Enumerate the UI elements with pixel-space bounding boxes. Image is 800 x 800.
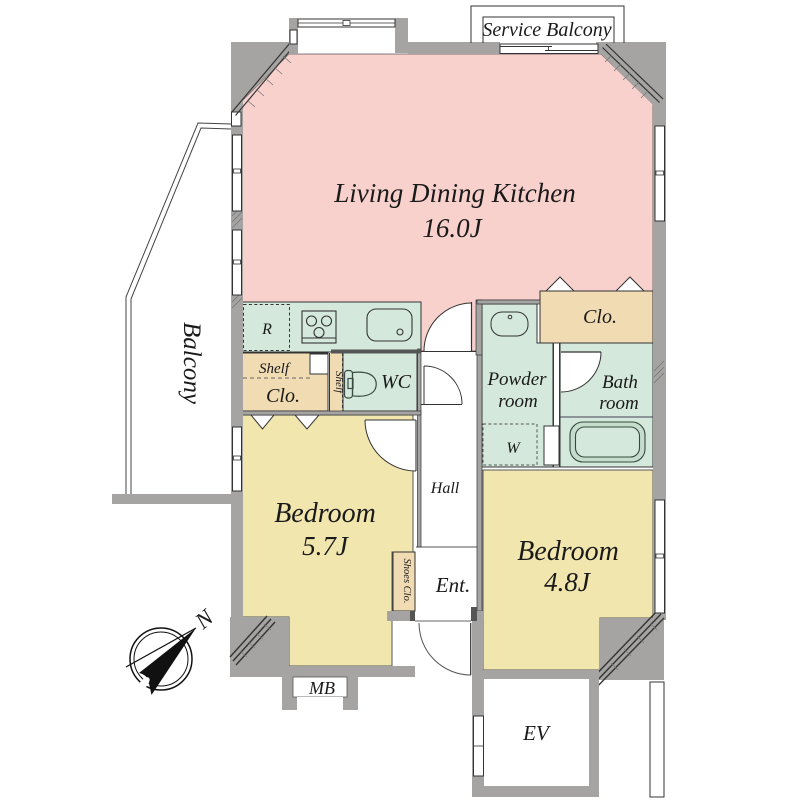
svg-text:Service Balcony: Service Balcony: [482, 19, 611, 41]
svg-text:W: W: [506, 440, 521, 457]
svg-text:Bedroom: Bedroom: [517, 536, 619, 567]
svg-text:WC: WC: [381, 371, 412, 393]
svg-text:5.7J: 5.7J: [302, 531, 350, 561]
svg-text:Hall: Hall: [430, 480, 460, 497]
svg-text:Clo.: Clo.: [266, 385, 300, 407]
svg-text:Shoes Clo.: Shoes Clo.: [401, 559, 412, 604]
svg-text:4.8J: 4.8J: [544, 567, 592, 597]
svg-text:Balcony: Balcony: [178, 322, 205, 405]
svg-text:room: room: [498, 391, 537, 412]
svg-text:R: R: [261, 321, 272, 338]
svg-text:MB: MB: [308, 678, 335, 698]
svg-text:Shelf: Shelf: [259, 361, 291, 377]
svg-text:Powder: Powder: [486, 369, 547, 390]
svg-text:EV: EV: [522, 721, 551, 745]
svg-text:room: room: [599, 393, 638, 414]
svg-text:Living Dining Kitchen: Living Dining Kitchen: [333, 178, 575, 208]
svg-text:Bedroom: Bedroom: [274, 498, 376, 529]
svg-text:16.0J: 16.0J: [422, 213, 483, 243]
svg-text:Ent.: Ent.: [435, 573, 470, 597]
svg-text:Clo.: Clo.: [583, 306, 617, 328]
svg-text:Bath: Bath: [602, 372, 638, 393]
